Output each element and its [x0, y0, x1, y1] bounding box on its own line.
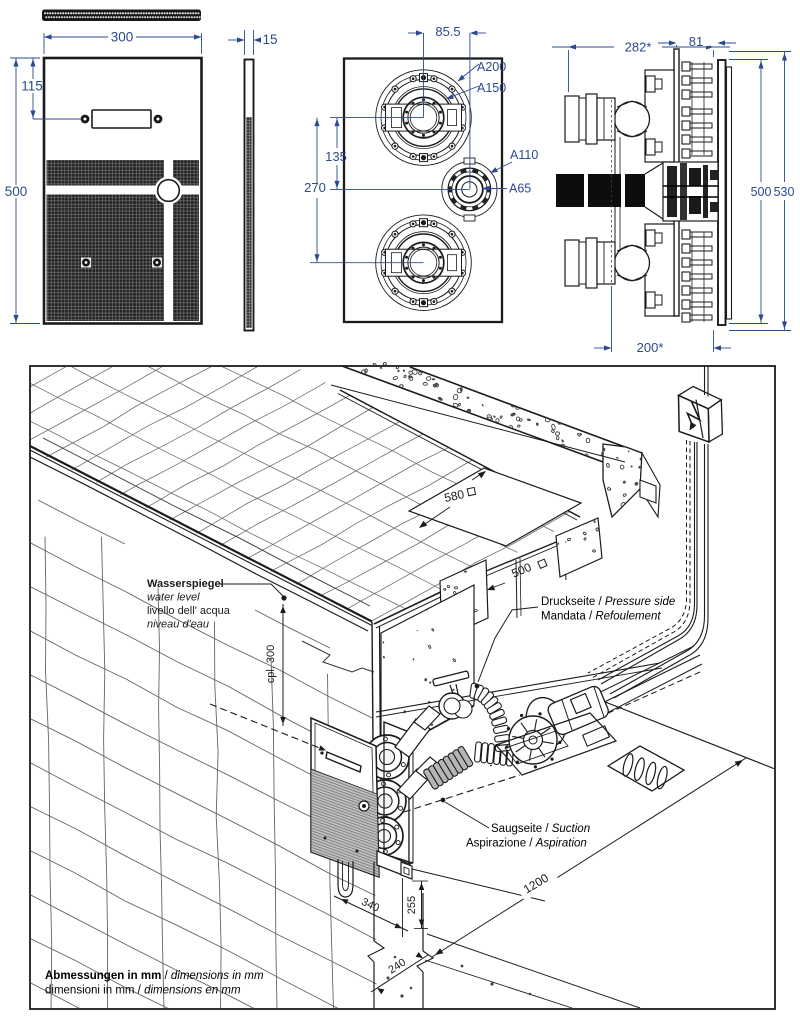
svg-text:530: 530: [774, 185, 795, 199]
svg-text:water level: water level: [147, 592, 200, 604]
svg-text:A200: A200: [477, 60, 506, 74]
svg-text:Wasserspiegel: Wasserspiegel: [147, 578, 224, 590]
svg-text:500: 500: [751, 185, 772, 199]
svg-text:81: 81: [689, 34, 703, 49]
svg-text:300: 300: [111, 30, 134, 45]
svg-text:270: 270: [304, 180, 326, 195]
svg-text:115: 115: [21, 79, 43, 94]
svg-text:cpl. 300: cpl. 300: [265, 645, 277, 684]
svg-text:135: 135: [325, 149, 347, 164]
svg-text:Mandata / Refoulement: Mandata / Refoulement: [541, 611, 661, 623]
svg-text:Druckseite / Pressure side: Druckseite / Pressure side: [541, 596, 675, 608]
svg-text:255: 255: [406, 896, 418, 914]
svg-text:282*: 282*: [625, 40, 652, 55]
svg-text:A65: A65: [509, 182, 531, 196]
svg-text:Aspirazione / Aspiration: Aspirazione / Aspiration: [466, 838, 587, 850]
svg-text:A150: A150: [477, 81, 506, 95]
svg-text:Abmessungen in mm / dimensions: Abmessungen in mm / dimensions in mm: [45, 970, 264, 982]
svg-text:livello dell' acqua: livello dell' acqua: [147, 605, 231, 617]
svg-text:dimensioni in mm / dimensions: dimensioni in mm / dimensions en mm: [45, 985, 241, 997]
svg-text:A110: A110: [510, 148, 538, 162]
svg-text:15: 15: [262, 32, 277, 47]
svg-text:500: 500: [5, 184, 28, 199]
svg-text:Saugseite / Suction: Saugseite / Suction: [491, 823, 590, 835]
svg-text:200*: 200*: [637, 340, 664, 355]
svg-text:niveau d'eau: niveau d'eau: [147, 619, 209, 631]
svg-text:85.5: 85.5: [435, 24, 460, 39]
